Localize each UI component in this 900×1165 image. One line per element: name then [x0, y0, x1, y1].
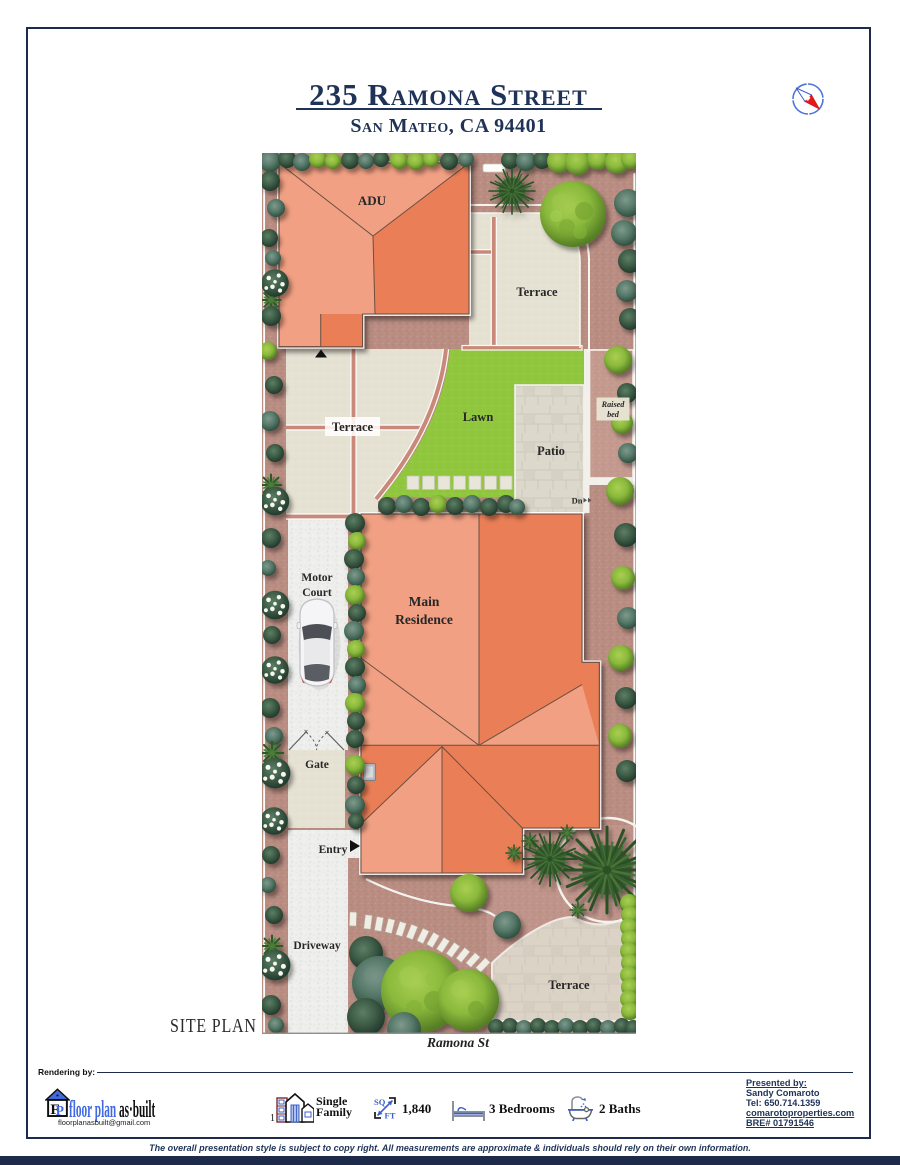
svg-text:Gate: Gate [305, 759, 329, 771]
svg-text:FT: FT [385, 1111, 396, 1121]
svg-text:Driveway: Driveway [293, 940, 341, 952]
svg-text:Patio: Patio [537, 444, 565, 458]
svg-text:Residence: Residence [395, 612, 453, 627]
svg-text:Terrace: Terrace [548, 978, 590, 992]
svg-text:Lawn: Lawn [463, 410, 494, 424]
svg-text:Motor: Motor [301, 572, 332, 584]
svg-text:ADU: ADU [358, 193, 387, 208]
svg-text:bed: bed [607, 410, 620, 419]
svg-text:Terrace: Terrace [516, 285, 558, 299]
svg-text:P: P [56, 1103, 64, 1118]
svg-text:Raised: Raised [601, 400, 626, 409]
svg-text:SQ: SQ [374, 1097, 386, 1107]
svg-text:Court: Court [302, 587, 332, 599]
svg-text:Main: Main [409, 594, 440, 609]
svg-text:Terrace: Terrace [332, 420, 374, 434]
svg-text:Entry: Entry [319, 844, 348, 856]
svg-text:1: 1 [270, 1113, 275, 1123]
svg-text:Dn: Dn [572, 496, 583, 506]
